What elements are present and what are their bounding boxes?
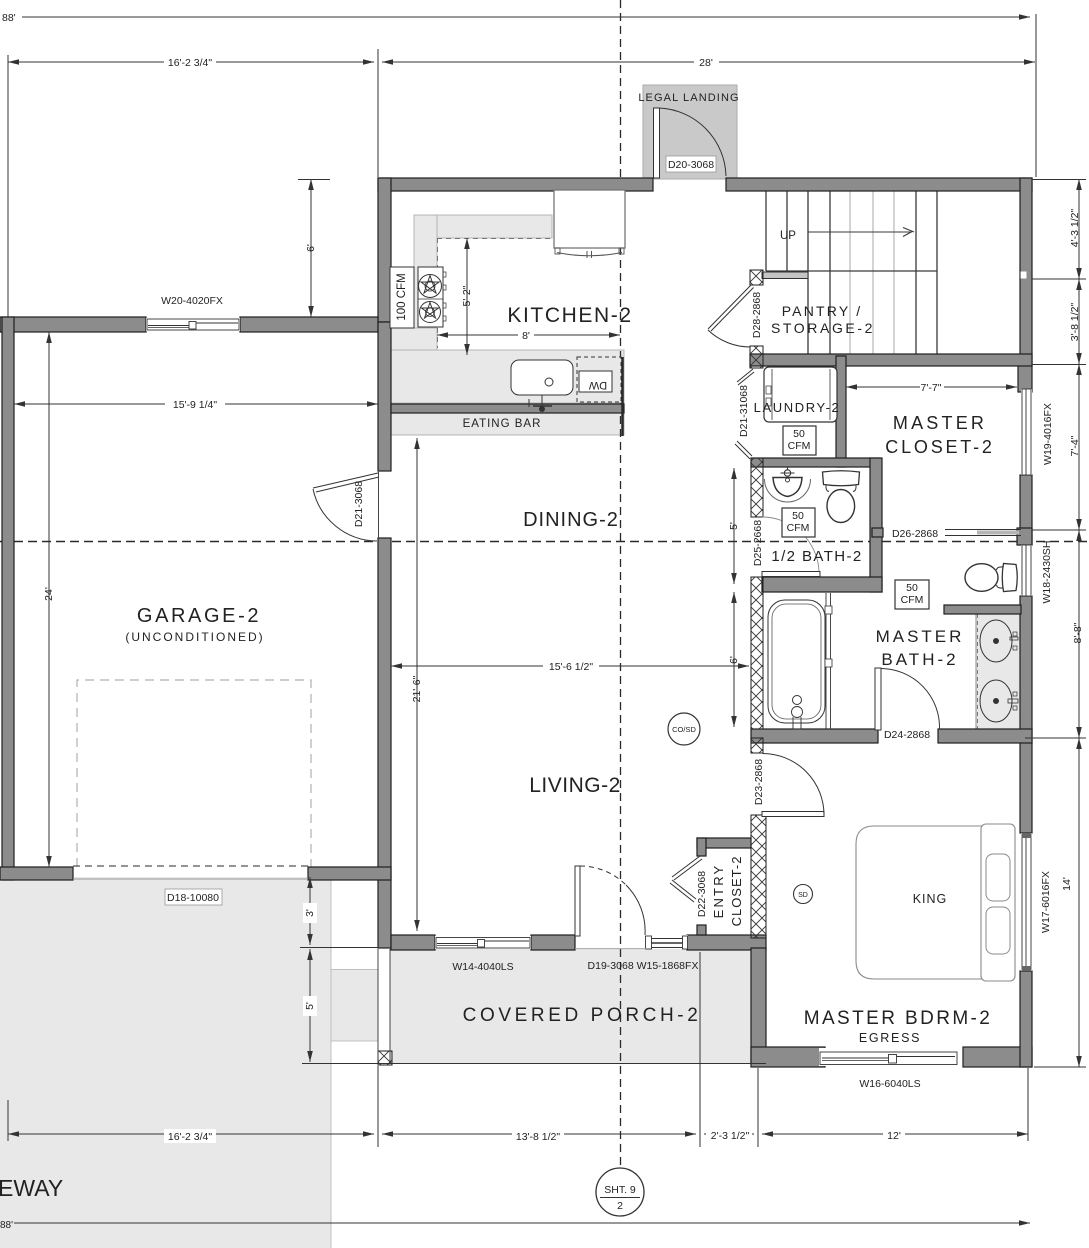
- svg-text:15'-6 1/2": 15'-6 1/2": [549, 661, 594, 673]
- svg-text:W19-4016FX: W19-4016FX: [1042, 403, 1054, 465]
- svg-text:24': 24': [43, 587, 55, 601]
- svg-text:8': 8': [522, 330, 530, 342]
- svg-text:50: 50: [906, 582, 918, 594]
- svg-text:3'-8 1/2": 3'-8 1/2": [1069, 303, 1081, 342]
- svg-text:8'-8": 8'-8": [1072, 622, 1084, 643]
- svg-text:88': 88': [2, 12, 16, 24]
- svg-text:28': 28': [699, 57, 713, 69]
- svg-text:CFM: CFM: [788, 440, 811, 452]
- svg-text:D22-3068: D22-3068: [696, 871, 708, 917]
- svg-text:W14-4040LS: W14-4040LS: [452, 961, 513, 973]
- svg-text:W20-4020FX: W20-4020FX: [161, 295, 223, 307]
- svg-text:MASTER: MASTER: [876, 627, 965, 646]
- svg-text:CLOSET-2: CLOSET-2: [885, 437, 994, 457]
- svg-text:D25-2668: D25-2668: [752, 520, 764, 566]
- svg-text:2'-3 1/2": 2'-3 1/2": [711, 1130, 750, 1142]
- svg-text:EWAY: EWAY: [0, 1175, 63, 1201]
- svg-text:1/2 BATH-2: 1/2 BATH-2: [771, 548, 862, 565]
- svg-text:D18-10080: D18-10080: [167, 892, 219, 904]
- svg-text:ENTRY: ENTRY: [711, 864, 726, 919]
- svg-text:100 CFM: 100 CFM: [396, 273, 408, 320]
- svg-text:88': 88': [0, 1220, 13, 1231]
- svg-text:4'-3 1/2": 4'-3 1/2": [1069, 209, 1081, 248]
- svg-text:UP: UP: [780, 230, 796, 242]
- svg-text:5'-2": 5'-2": [461, 285, 473, 306]
- svg-text:CFM: CFM: [901, 594, 924, 606]
- svg-text:D19-3068 W15-1868FX: D19-3068 W15-1868FX: [588, 960, 699, 972]
- svg-text:(UNCONDITIONED): (UNCONDITIONED): [125, 630, 264, 644]
- svg-text:15'-9 1/4": 15'-9 1/4": [173, 399, 218, 411]
- svg-text:EATING BAR: EATING BAR: [463, 418, 542, 430]
- svg-text:KITCHEN-2: KITCHEN-2: [507, 304, 632, 327]
- svg-text:W18-2430SH: W18-2430SH: [1041, 540, 1053, 603]
- svg-text:13'-8 1/2": 13'-8 1/2": [516, 1131, 561, 1143]
- svg-text:DW: DW: [588, 379, 607, 391]
- svg-text:MASTER: MASTER: [893, 413, 987, 433]
- svg-text:STORAGE-2: STORAGE-2: [771, 320, 875, 336]
- svg-text:W17-6016FX: W17-6016FX: [1040, 871, 1052, 933]
- svg-text:BATH-2: BATH-2: [881, 650, 958, 669]
- svg-text:KING: KING: [913, 892, 948, 906]
- svg-text:PANTRY /: PANTRY /: [782, 303, 863, 319]
- svg-text:SD: SD: [798, 892, 808, 899]
- svg-text:50: 50: [792, 510, 804, 522]
- svg-text:LEGAL LANDING: LEGAL LANDING: [638, 92, 739, 104]
- svg-text:GARAGE-2: GARAGE-2: [137, 605, 261, 627]
- svg-text:CO/SD: CO/SD: [672, 725, 696, 734]
- svg-text:D28-2868: D28-2868: [751, 292, 763, 338]
- svg-text:W16-6040LS: W16-6040LS: [859, 1078, 920, 1090]
- svg-text:7'-7": 7'-7": [921, 382, 942, 394]
- svg-text:CFM: CFM: [787, 522, 810, 534]
- svg-text:DINING-2: DINING-2: [523, 509, 619, 531]
- svg-text:D24-2868: D24-2868: [884, 729, 930, 741]
- svg-text:SHT. 9: SHT. 9: [604, 1184, 636, 1196]
- svg-text:5': 5': [304, 1002, 316, 1010]
- svg-text:COVERED PORCH-2: COVERED PORCH-2: [463, 1005, 702, 1026]
- svg-text:14': 14': [1061, 877, 1073, 891]
- svg-text:16'-2 3/4": 16'-2 3/4": [168, 1131, 213, 1143]
- svg-text:7'-4": 7'-4": [1069, 435, 1081, 456]
- svg-text:21'-6": 21'-6": [411, 675, 423, 702]
- svg-text:3': 3': [304, 909, 316, 917]
- svg-text:D23-2868: D23-2868: [753, 759, 765, 805]
- svg-text:MASTER BDRM-2: MASTER BDRM-2: [804, 1008, 993, 1029]
- svg-text:LIVING-2: LIVING-2: [529, 774, 621, 797]
- svg-text:CLOSET-2: CLOSET-2: [729, 856, 744, 927]
- svg-text:D21-3068: D21-3068: [353, 481, 365, 527]
- svg-text:EGRESS: EGRESS: [859, 1031, 921, 1045]
- svg-text:LAUNDRY-2: LAUNDRY-2: [754, 400, 841, 415]
- svg-text:D20-3068: D20-3068: [668, 159, 714, 171]
- svg-text:D26-2868: D26-2868: [892, 528, 938, 540]
- svg-text:16'-2 3/4": 16'-2 3/4": [168, 57, 213, 69]
- svg-text:12': 12': [887, 1130, 901, 1142]
- svg-text:6': 6': [305, 244, 317, 252]
- svg-text:6': 6': [728, 656, 740, 664]
- svg-text:2: 2: [617, 1200, 623, 1212]
- svg-text:50: 50: [793, 428, 805, 440]
- svg-text:5': 5': [728, 522, 740, 530]
- svg-text:D21-31068: D21-31068: [738, 385, 750, 437]
